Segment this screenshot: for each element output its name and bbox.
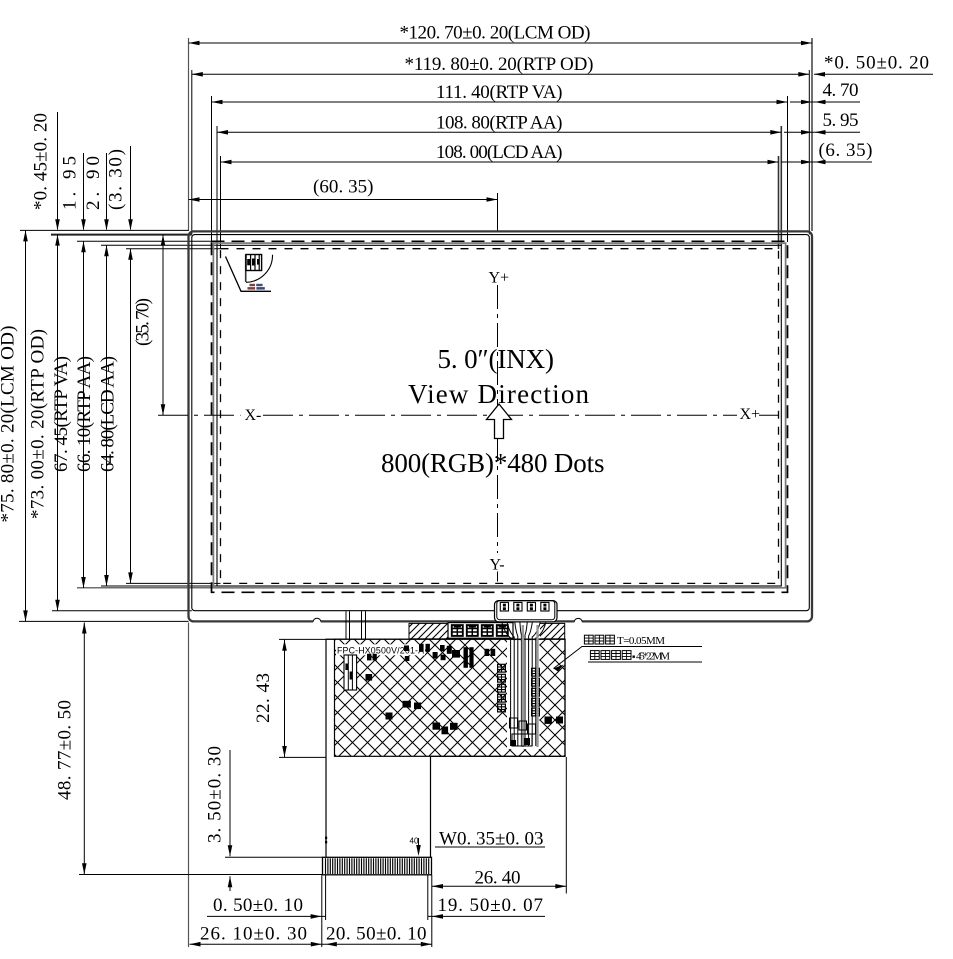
svg-text:111. 40(RTP VA): 111. 40(RTP VA) (436, 82, 563, 103)
svg-text:0. 50±0. 10: 0. 50±0. 10 (213, 895, 303, 916)
svg-text:(6. 35): (6. 35) (819, 140, 873, 161)
svg-text:48. 77±0. 50: 48. 77±0. 50 (55, 700, 76, 800)
svg-text:26. 40: 26. 40 (475, 868, 521, 889)
svg-text:*0. 50±0. 20: *0. 50±0. 20 (824, 52, 929, 73)
svg-text:45*22MM: 45*22MM (636, 651, 670, 663)
svg-text:64. 80(LCD AA): 64. 80(LCD AA) (98, 356, 119, 472)
svg-text:FPC-HX0500V/201-A: FPC-HX0500V/201-A (337, 645, 424, 655)
svg-text:*120. 70±0. 20(LCM OD): *120. 70±0. 20(LCM OD) (400, 23, 591, 44)
svg-text:(35. 70): (35. 70) (133, 298, 154, 346)
svg-text:Y+: Y+ (489, 270, 510, 287)
svg-text:108. 80(RTP AA): 108. 80(RTP AA) (436, 113, 563, 134)
svg-text:40: 40 (410, 837, 419, 846)
svg-text:5. 0″(INX): 5. 0″(INX) (438, 344, 555, 374)
svg-text:67. 45(RTP VA): 67. 45(RTP VA) (51, 356, 72, 472)
svg-text:*0. 45±0. 20: *0. 45±0. 20 (31, 113, 52, 210)
svg-text:*75. 80±0. 20(LCM OD): *75. 80±0. 20(LCM OD) (0, 326, 19, 523)
svg-text:20. 50±0. 10: 20. 50±0. 10 (326, 924, 427, 945)
svg-text:22. 43: 22. 43 (253, 673, 274, 723)
svg-text:Y-: Y- (490, 557, 505, 574)
svg-text:26. 10±0. 30: 26. 10±0. 30 (200, 924, 307, 945)
svg-text:800(RGB)*480 Dots: 800(RGB)*480 Dots (381, 448, 605, 478)
svg-text:3. 50±0. 30: 3. 50±0. 30 (205, 746, 226, 843)
svg-text:19. 50±0. 07: 19. 50±0. 07 (438, 895, 544, 916)
svg-text:(60. 35): (60. 35) (313, 177, 374, 198)
svg-text:4. 70: 4. 70 (823, 80, 859, 101)
svg-text:*73. 00±0. 20(RTP OD): *73. 00±0. 20(RTP OD) (28, 329, 49, 519)
svg-text:X-: X- (245, 407, 262, 424)
svg-text:108. 00(LCD AA): 108. 00(LCD AA) (436, 142, 563, 163)
svg-text:*119. 80±0. 20(RTP OD): *119. 80±0. 20(RTP OD) (405, 54, 594, 75)
svg-text:X+: X+ (740, 406, 761, 423)
svg-text:T=0.05MM: T=0.05MM (617, 635, 665, 647)
svg-text:66. 10(RTP AA): 66. 10(RTP AA) (74, 356, 95, 472)
svg-text:W0. 35±0. 03: W0. 35±0. 03 (439, 828, 544, 849)
svg-text:5. 95: 5. 95 (823, 110, 859, 131)
